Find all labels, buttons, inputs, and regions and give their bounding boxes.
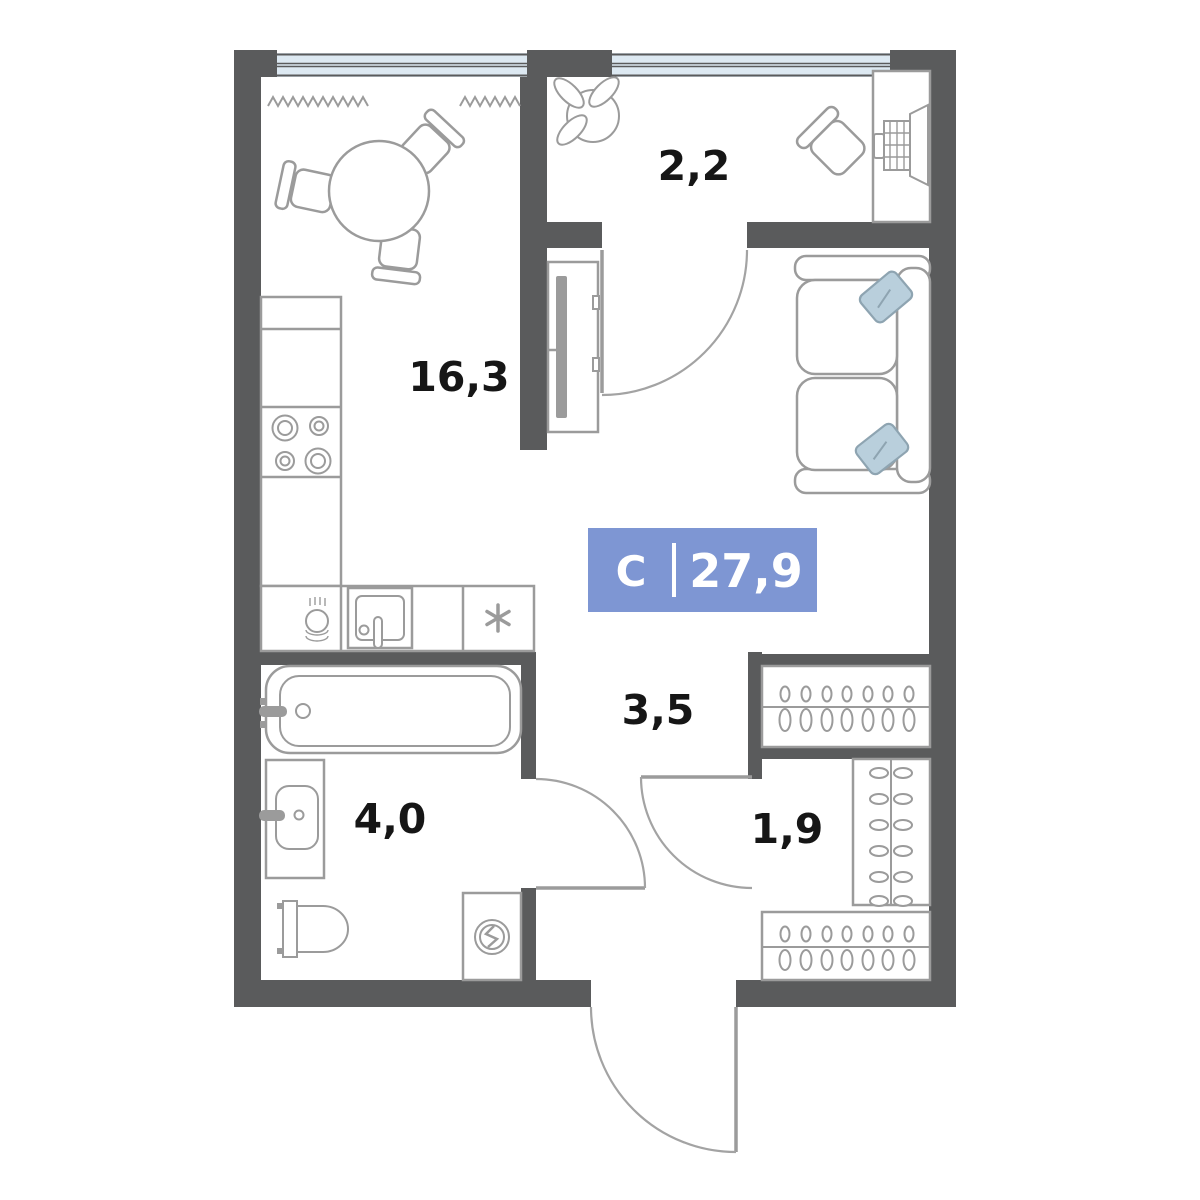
window-balcony (612, 53, 890, 77)
dining-table (329, 141, 429, 241)
tv-screen (556, 276, 567, 418)
bathtub-icon (259, 666, 521, 753)
wall-bathroom-east-lower (521, 888, 536, 980)
badge-type-letter: С (616, 547, 647, 596)
kitchen-counter-vertical (261, 297, 341, 586)
radiators (268, 97, 520, 106)
floor-plan-page: 16,3 2,2 3,5 4,0 1,9 С 27,9 (0, 0, 1200, 1200)
wall-top-mid (527, 50, 612, 77)
room-label-hallway: 3,5 (622, 686, 695, 734)
room-label-bathroom: 4,0 (354, 795, 427, 843)
wardrobe-rail-top (762, 666, 930, 747)
wall-niche-south (762, 747, 929, 759)
wardrobe-rail-right (853, 759, 930, 906)
hallway-door-swing (641, 777, 752, 888)
floor-plan-canvas: 16,3 2,2 3,5 4,0 1,9 С 27,9 (0, 0, 1200, 1200)
window-glass (277, 53, 527, 77)
room-label-wardrobe: 1,9 (751, 805, 824, 853)
kitchen-sink-icon (348, 588, 412, 648)
wall-hall-stub (748, 652, 762, 779)
wall-balcony-south-east (747, 222, 929, 248)
bathroom-door-swing (536, 779, 645, 888)
radiator-icon (268, 97, 368, 106)
toilet-icon (277, 901, 348, 957)
wall-left (234, 50, 261, 1007)
badge-total-area: 27,9 (689, 544, 803, 598)
plant-icon (550, 73, 624, 150)
wardrobe-rail-bottom (762, 912, 930, 980)
room-label-kitchen-living: 16,3 (408, 353, 509, 401)
wall-bathroom-east-upper (521, 652, 536, 779)
entrance-door-swing (591, 1007, 736, 1152)
living-fixtures (548, 256, 930, 493)
wall-niche-north (748, 654, 929, 666)
sofa (795, 256, 930, 493)
wall-bottom-right (736, 980, 956, 1007)
washbasin-icon (259, 760, 324, 878)
washing-machine-icon (463, 893, 521, 980)
window-glass (612, 53, 890, 77)
room-label-balcony: 2,2 (658, 142, 731, 190)
balcony-fixtures (550, 71, 930, 222)
window-kitchen (277, 53, 527, 77)
desk-chair (795, 105, 872, 182)
wall-balcony-south-west (547, 222, 602, 248)
wall-kitchen-balcony (520, 77, 547, 450)
radiator-icon (460, 97, 520, 106)
total-area-badge: С 27,9 (588, 528, 817, 612)
wall-bathroom-north (261, 652, 535, 665)
tv-stand (548, 262, 599, 432)
balcony-door-swing (602, 250, 747, 395)
wall-bottom-left (234, 980, 591, 1007)
wall-right (929, 50, 956, 1007)
